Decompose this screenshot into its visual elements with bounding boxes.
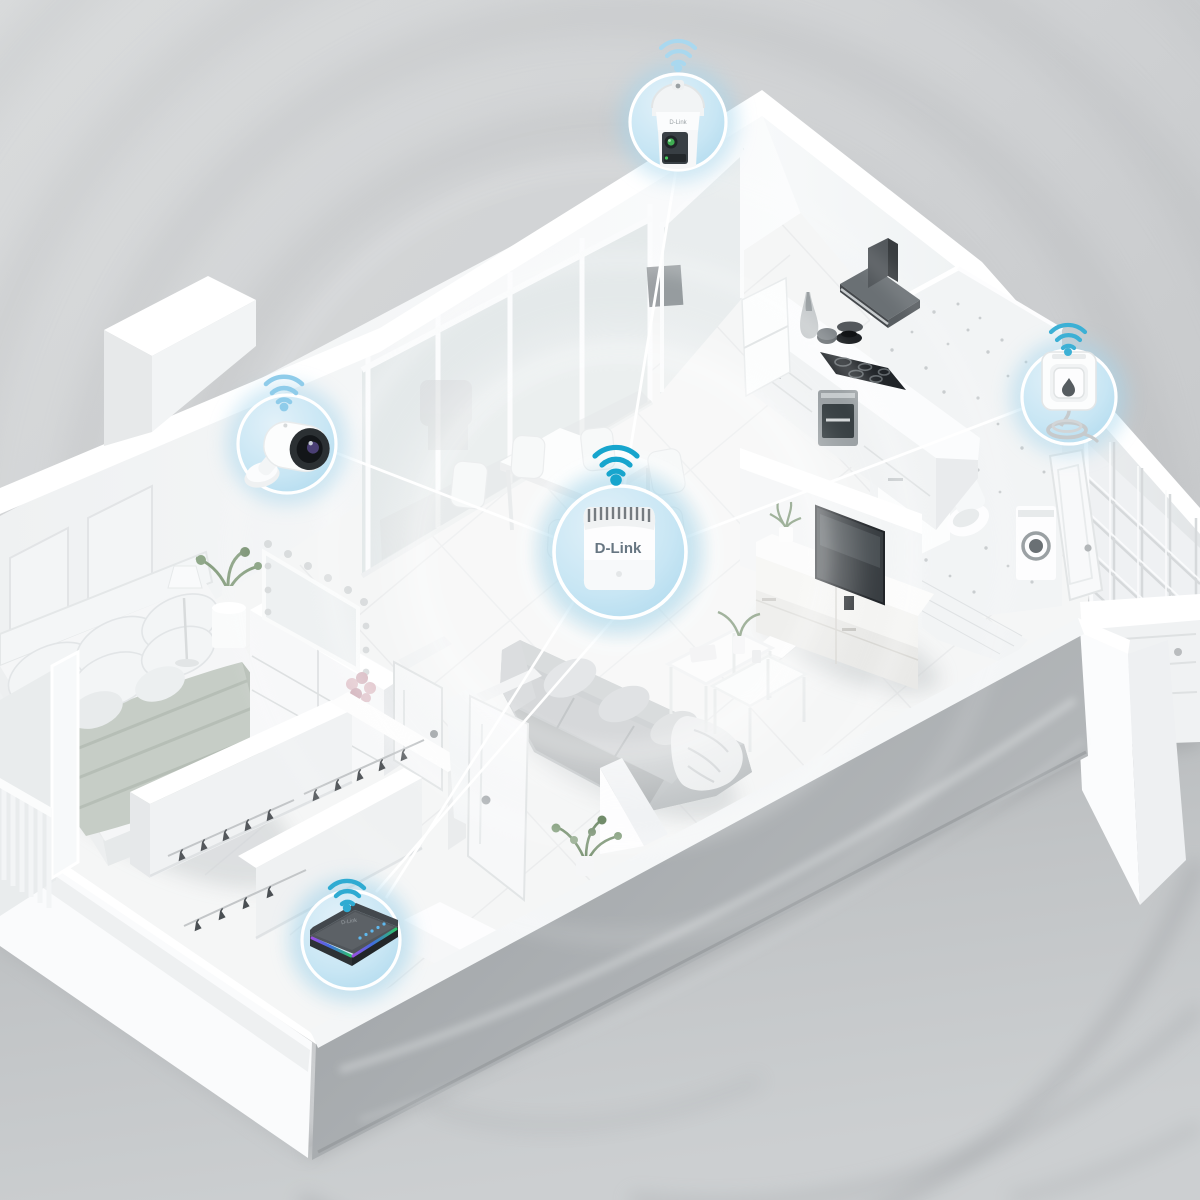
svg-text:D-Link: D-Link [669, 120, 687, 126]
svg-text:D-Link: D-Link [595, 540, 642, 557]
